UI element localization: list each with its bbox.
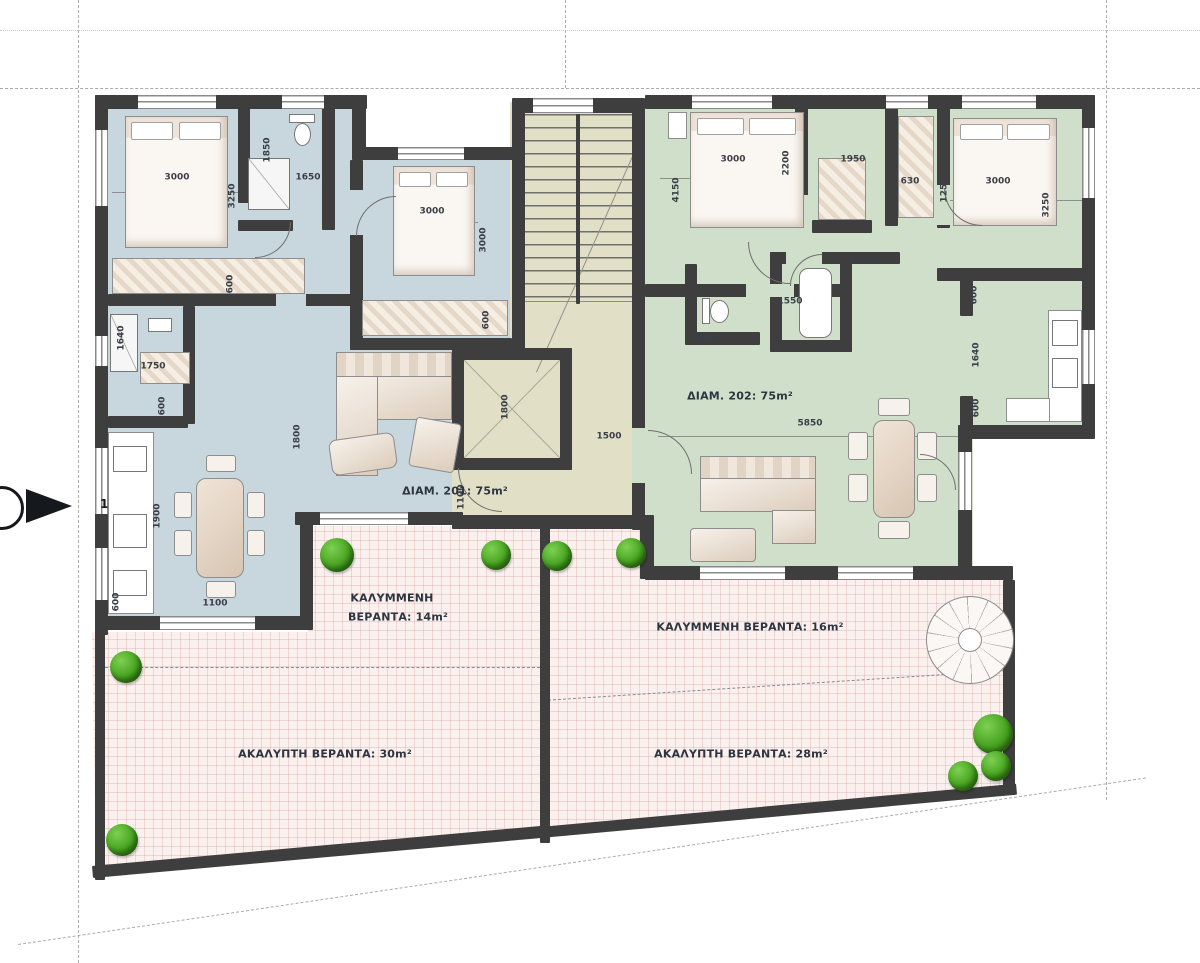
floor-plan: 3000325018501650600300030006001640175060… bbox=[0, 0, 1200, 963]
chair bbox=[878, 521, 910, 539]
window bbox=[886, 95, 928, 109]
boundary-line bbox=[78, 0, 79, 963]
uncovered-veranda-right-label: ΑΚΑΛΥΠΤΗ ΒΕΡΑΝΤΑ: 28m² bbox=[654, 748, 828, 761]
apt201-area-label: ΔΙΑΜ. 201: 75m² bbox=[402, 485, 508, 498]
dining-table bbox=[873, 420, 915, 518]
window-vertical bbox=[1082, 330, 1095, 384]
dimension-label: 3000 bbox=[985, 178, 1010, 187]
elevator-cab bbox=[464, 360, 560, 458]
dimension-label: 2200 bbox=[783, 150, 792, 175]
window bbox=[962, 95, 1036, 109]
wall bbox=[840, 252, 852, 352]
nightstand bbox=[668, 112, 687, 139]
dimension-label: 600 bbox=[973, 399, 982, 418]
pillow bbox=[399, 172, 431, 187]
chair bbox=[247, 530, 265, 556]
dining-table bbox=[196, 478, 244, 578]
coffee-table bbox=[690, 528, 756, 562]
bush-icon bbox=[320, 538, 354, 572]
toilet-tank bbox=[289, 114, 315, 123]
bush-icon bbox=[981, 751, 1011, 781]
chair bbox=[878, 398, 910, 416]
bush-icon bbox=[948, 761, 978, 791]
window bbox=[533, 98, 593, 113]
pillow bbox=[436, 172, 468, 187]
dimension-label: 600 bbox=[113, 593, 122, 612]
wall bbox=[300, 524, 313, 628]
apt202-area-label: ΔΙΑΜ. 202: 75m² bbox=[687, 390, 793, 403]
bush-icon bbox=[616, 538, 646, 568]
chair bbox=[174, 492, 192, 518]
chair bbox=[247, 492, 265, 518]
sofa-back bbox=[336, 352, 452, 378]
sofa-back bbox=[700, 456, 816, 480]
pillow bbox=[131, 122, 173, 140]
window bbox=[838, 566, 913, 580]
dimension-label: 3000 bbox=[480, 227, 489, 252]
toilet-bowl bbox=[294, 123, 311, 146]
dimension-label: 1100 bbox=[202, 600, 227, 609]
wall bbox=[512, 108, 525, 350]
toilet-bowl bbox=[710, 300, 729, 323]
boundary-line bbox=[1106, 0, 1107, 800]
wall bbox=[576, 114, 580, 304]
wardrobe bbox=[818, 158, 866, 220]
boundary-line bbox=[0, 30, 1200, 31]
dimension-label: 600 bbox=[159, 397, 168, 416]
window-vertical bbox=[1082, 128, 1095, 198]
dimension-label: 1640 bbox=[118, 325, 127, 350]
uncovered-veranda-left-label: ΑΚΑΛΥΠΤΗ ΒΕΡΑΝΤΑ: 30m² bbox=[238, 748, 412, 761]
dimension-label: 3250 bbox=[1043, 192, 1052, 217]
sofa-chaise bbox=[772, 510, 816, 544]
window-vertical bbox=[95, 130, 108, 206]
door-gap bbox=[276, 294, 306, 306]
boundary-line bbox=[100, 667, 540, 668]
wall bbox=[322, 98, 335, 230]
dimension-label: 600 bbox=[483, 311, 492, 330]
chair bbox=[206, 581, 236, 598]
wall bbox=[958, 425, 1095, 439]
boundary-line bbox=[0, 88, 1200, 89]
pillow bbox=[179, 122, 221, 140]
wall bbox=[108, 294, 278, 306]
sink bbox=[1052, 320, 1078, 346]
dimension-label: 3000 bbox=[419, 208, 444, 217]
window bbox=[700, 566, 785, 580]
door-gap bbox=[632, 428, 645, 483]
dimension-label: 1250 bbox=[941, 177, 950, 202]
wall bbox=[452, 515, 652, 529]
dimension-label: 5850 bbox=[797, 420, 822, 429]
chair bbox=[848, 474, 868, 502]
dimension-label: 630 bbox=[901, 178, 920, 187]
wardrobe bbox=[112, 258, 305, 294]
bush-icon bbox=[106, 824, 138, 856]
bush-icon bbox=[542, 541, 572, 571]
wall bbox=[300, 294, 352, 306]
dimension-label: 1640 bbox=[973, 342, 982, 367]
pillow bbox=[1007, 124, 1050, 140]
pillow bbox=[697, 118, 744, 135]
dimension-label: 1800 bbox=[502, 394, 511, 419]
sink bbox=[113, 446, 147, 472]
wall bbox=[108, 416, 188, 428]
dimension-label: 3000 bbox=[720, 156, 745, 165]
kitchen-counter bbox=[1006, 398, 1050, 422]
shower bbox=[248, 158, 290, 210]
window bbox=[320, 512, 408, 525]
dimension-label: 1550 bbox=[777, 298, 802, 307]
wardrobe bbox=[898, 116, 934, 218]
wall bbox=[560, 348, 572, 470]
window-vertical bbox=[958, 452, 972, 510]
pillow bbox=[960, 124, 1003, 140]
door-gap bbox=[746, 284, 794, 297]
window bbox=[138, 95, 216, 109]
toilet-tank bbox=[702, 298, 710, 324]
window bbox=[160, 616, 255, 630]
dimension-label: 1900 bbox=[154, 503, 163, 528]
window-vertical bbox=[95, 548, 108, 600]
section-marker-arrow-icon bbox=[26, 489, 72, 523]
covered-veranda-left-label-line1: ΚΑΛΥΜΜΕΝΗ bbox=[350, 592, 433, 605]
wall bbox=[885, 108, 898, 226]
dimension-label: 1650 bbox=[295, 174, 320, 183]
covered-veranda-right-label: ΚΑΛΥΜΜΕΝΗ ΒΕΡΑΝΤΑ: 16m² bbox=[656, 621, 843, 634]
dimension-label: 1500 bbox=[596, 433, 621, 442]
pillow bbox=[749, 118, 796, 135]
wall bbox=[452, 348, 572, 360]
bush-icon bbox=[973, 714, 1013, 754]
dimension-label: 1750 bbox=[140, 363, 165, 372]
dimension-label: 3250 bbox=[229, 183, 238, 208]
section-marker-circle bbox=[0, 486, 24, 530]
wall bbox=[812, 220, 872, 233]
window-vertical bbox=[95, 336, 108, 366]
dimension-label: 1800 bbox=[690, 334, 715, 343]
bush-icon bbox=[481, 540, 511, 570]
dimension-label: 1100 bbox=[849, 258, 874, 267]
stove bbox=[113, 514, 147, 548]
sink bbox=[148, 318, 172, 332]
wall bbox=[540, 526, 550, 843]
dimension-label: 1950 bbox=[840, 156, 865, 165]
wall bbox=[685, 264, 697, 336]
chair bbox=[174, 530, 192, 556]
chair bbox=[206, 455, 236, 472]
chair bbox=[848, 432, 868, 460]
dimension-label: 4150 bbox=[673, 177, 682, 202]
window bbox=[398, 147, 464, 160]
dimension-label: 600 bbox=[971, 286, 980, 305]
dimension-label: 600 bbox=[227, 275, 236, 294]
dimension-label: 1850 bbox=[264, 137, 273, 162]
boundary-line bbox=[565, 0, 566, 88]
window bbox=[692, 95, 772, 109]
dimension-label: 1800 bbox=[294, 424, 303, 449]
spiral-stair-hub bbox=[958, 628, 982, 652]
wall bbox=[95, 628, 105, 880]
section-marker-number: 1 bbox=[100, 497, 108, 511]
window bbox=[282, 95, 324, 109]
bush-icon bbox=[110, 651, 142, 683]
sofa-seat bbox=[700, 478, 816, 512]
dimension-label: 3000 bbox=[164, 174, 189, 183]
stove bbox=[1052, 358, 1078, 388]
wall bbox=[770, 340, 852, 352]
covered-veranda-left-label-line2: ΒΕΡΑΝΤΑ: 14m² bbox=[348, 611, 448, 624]
armchair bbox=[408, 416, 462, 473]
